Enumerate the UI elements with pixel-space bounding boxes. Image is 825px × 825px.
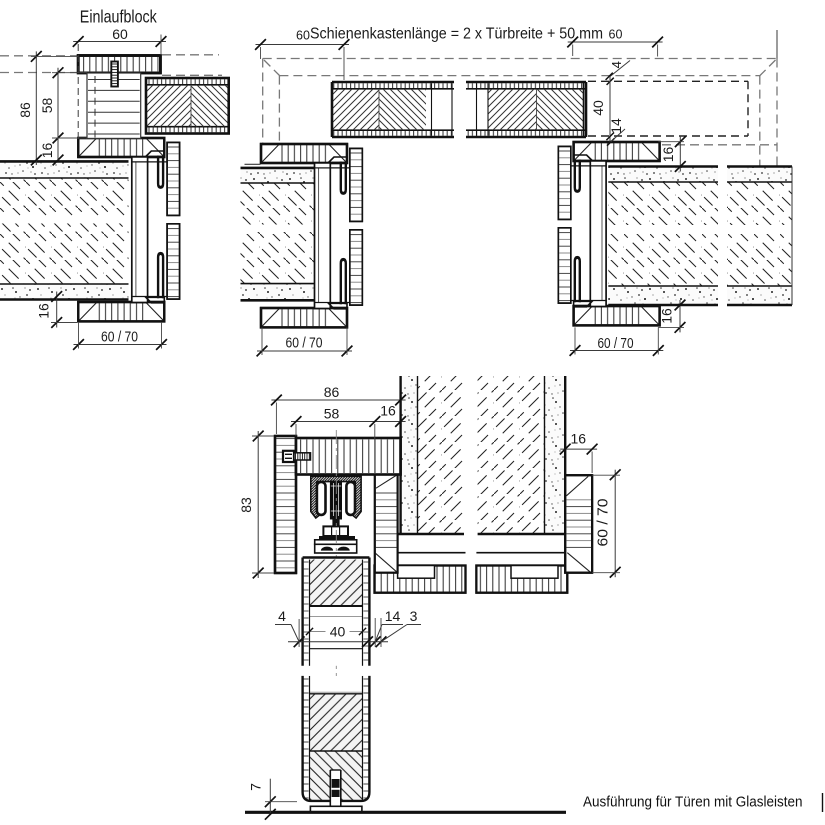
svg-text:58: 58 <box>324 406 340 422</box>
svg-text:16: 16 <box>39 143 55 159</box>
svg-text:16: 16 <box>36 303 52 319</box>
svg-text:86: 86 <box>17 102 33 118</box>
svg-text:14: 14 <box>385 608 401 624</box>
svg-text:16: 16 <box>571 431 587 447</box>
svg-text:3: 3 <box>410 608 418 624</box>
svg-text:Ausführung für Türen mit Glasl: Ausführung für Türen mit Glasleisten <box>583 794 803 811</box>
svg-text:Schienenkastenlänge = 2 x Türb: Schienenkastenlänge = 2 x Türbreite + 50… <box>310 26 603 43</box>
svg-text:86: 86 <box>324 384 340 400</box>
svg-text:40: 40 <box>590 100 606 116</box>
svg-text:4: 4 <box>278 608 286 624</box>
svg-text:7: 7 <box>248 783 264 791</box>
svg-text:60: 60 <box>112 26 128 42</box>
svg-text:58: 58 <box>39 98 55 114</box>
svg-text:60 / 70: 60 / 70 <box>598 336 634 352</box>
svg-text:60: 60 <box>296 29 310 43</box>
svg-text:83: 83 <box>238 497 254 513</box>
svg-text:14: 14 <box>608 118 624 134</box>
svg-text:Einlaufblock: Einlaufblock <box>80 7 157 27</box>
svg-text:16: 16 <box>658 308 674 324</box>
svg-text:16: 16 <box>380 403 396 419</box>
svg-text:60 / 70: 60 / 70 <box>596 499 612 547</box>
svg-text:60 / 70: 60 / 70 <box>101 330 138 346</box>
svg-text:60 / 70: 60 / 70 <box>286 336 323 352</box>
svg-text:40: 40 <box>330 624 346 640</box>
svg-text:16: 16 <box>660 147 676 163</box>
svg-text:60: 60 <box>609 28 623 42</box>
